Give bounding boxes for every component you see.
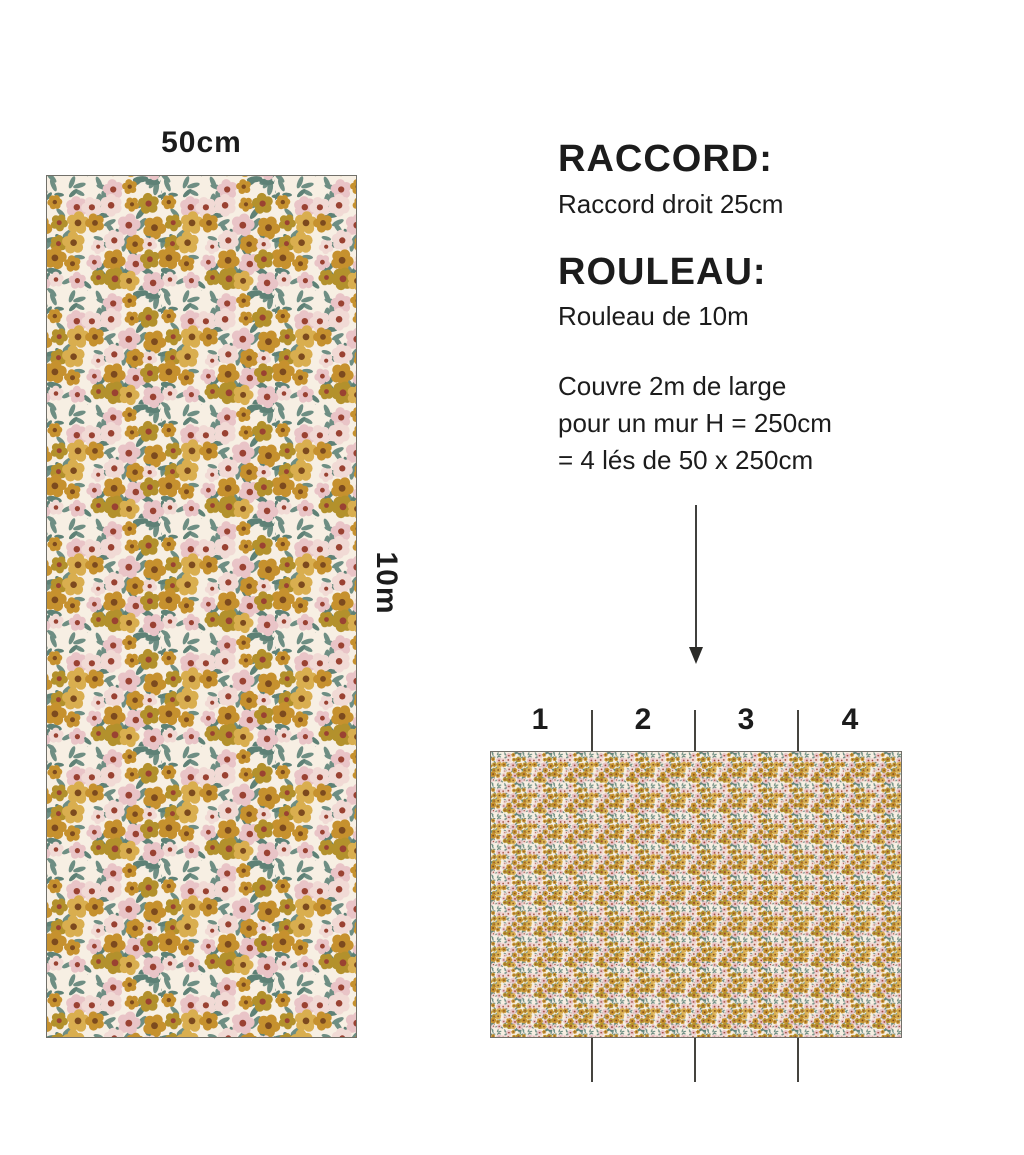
floral-pattern-wall — [491, 752, 901, 1037]
wall-coverage-swatch — [490, 751, 902, 1038]
raccord-title: RACCORD: — [558, 139, 773, 181]
wallpaper-roll-swatch — [46, 175, 357, 1038]
strip-number-1: 1 — [532, 703, 549, 737]
roll-height-label: 10m — [369, 551, 403, 614]
wallpaper-spec-diagram: 50cm 10m RACCORD: Raccord droit 25cm ROU… — [0, 0, 1024, 1155]
raccord-value: Raccord droit 25cm — [558, 189, 783, 220]
strip-number-3: 3 — [738, 703, 755, 737]
strip-number-2: 2 — [635, 703, 652, 737]
coverage-line-3: = 4 lés de 50 x 250cm — [558, 442, 832, 479]
rouleau-title: ROULEAU: — [558, 252, 767, 294]
coverage-line-1: Couvre 2m de large — [558, 368, 832, 405]
coverage-text: Couvre 2m de large pour un mur H = 250cm… — [558, 368, 832, 479]
rouleau-value: Rouleau de 10m — [558, 301, 749, 332]
strip-number-4: 4 — [842, 703, 859, 737]
down-arrow-icon — [687, 505, 705, 665]
floral-pattern-roll — [47, 176, 356, 1037]
roll-width-label: 50cm — [46, 126, 357, 160]
coverage-line-2: pour un mur H = 250cm — [558, 405, 832, 442]
